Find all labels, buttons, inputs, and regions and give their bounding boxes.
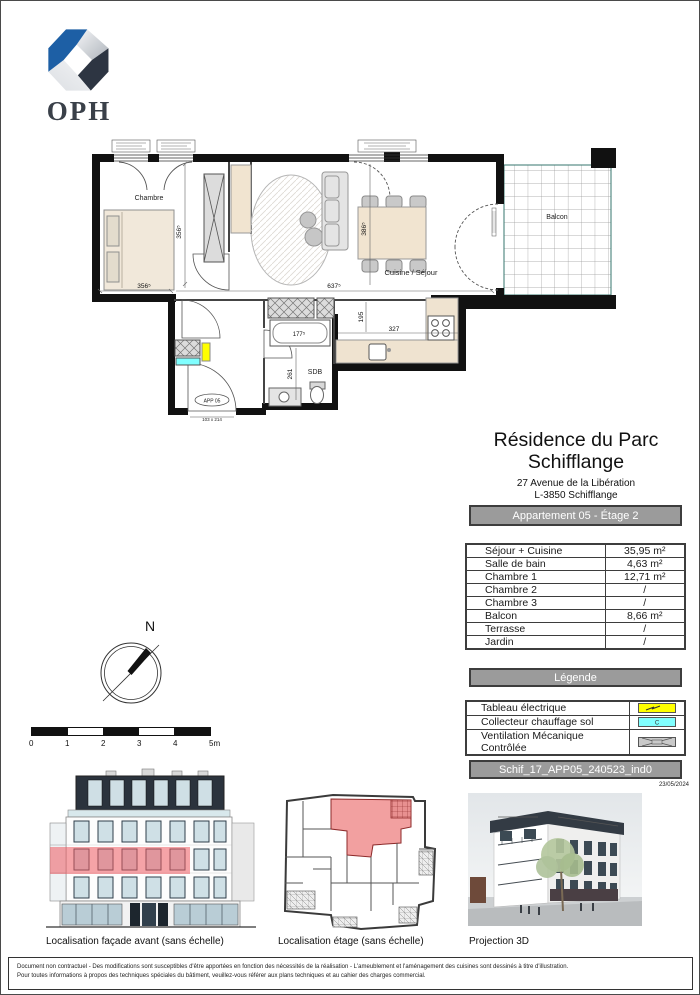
- bedroom-label: Chambre: [135, 195, 164, 202]
- area-value: /: [605, 597, 685, 610]
- area-value: /: [605, 623, 685, 636]
- projection-3d: [468, 793, 642, 926]
- entry-label: APP 05: [204, 399, 221, 405]
- scale-bar: [31, 727, 211, 736]
- legend-label: Tableau électrique: [466, 701, 629, 715]
- svg-text:356⁵: 356⁵: [176, 225, 183, 239]
- area-label: Chambre 2: [466, 584, 605, 597]
- vmc-swatch-icon: [638, 737, 676, 747]
- disclaimer-box: Document non contractuel - Des modificat…: [8, 957, 693, 990]
- svg-text:637⁵: 637⁵: [327, 283, 341, 290]
- storefront: [550, 889, 618, 901]
- table-row: Terrasse/: [466, 623, 685, 636]
- svg-text:195: 195: [358, 311, 365, 322]
- table-row: Salle de bain4,63 m²: [466, 558, 685, 571]
- compass-needle: [128, 648, 152, 675]
- floor-plan: Balcon: [86, 132, 616, 424]
- terrace-band: [68, 810, 230, 817]
- bathroom-label: SDB: [308, 369, 323, 376]
- oph-logo: OPH: [27, 27, 131, 127]
- compass: N: [93, 615, 179, 715]
- scale-tick: 0: [29, 739, 33, 748]
- svg-text:386⁵: 386⁵: [361, 222, 368, 236]
- balcony-label: Balcon: [546, 214, 568, 221]
- scale-tick: 3: [137, 739, 141, 748]
- scale-tick: 5m: [209, 739, 220, 748]
- scale-tick: 4: [173, 739, 177, 748]
- plan-sheet: OPH Balcon: [0, 0, 700, 995]
- legend-label: Ventilation Mécanique Contrôlée: [466, 729, 629, 755]
- scale-tick: 2: [101, 739, 105, 748]
- stove-icon: [428, 316, 454, 340]
- roof-equipment: [106, 769, 208, 776]
- legend-row: Ventilation Mécanique Contrôlée: [466, 729, 685, 755]
- legend-row: Tableau électrique: [466, 701, 685, 715]
- etage-caption: Localisation étage (sans échelle): [278, 936, 424, 947]
- sofa: [322, 172, 348, 250]
- address-line2: L-3850 Schifflange: [461, 490, 691, 502]
- svg-text:327: 327: [389, 326, 400, 333]
- area-label: Séjour + Cuisine: [466, 544, 605, 558]
- bathroom: SDB: [268, 298, 334, 406]
- table-row: Séjour + Cuisine35,95 m²: [466, 544, 685, 558]
- table-row: Chambre 3/: [466, 597, 685, 610]
- apartment-balcony-hatch: [391, 800, 411, 818]
- oph-logo-text: OPH: [27, 96, 131, 127]
- oph-logo-icon: [43, 27, 115, 93]
- svg-text:C: C: [655, 721, 660, 727]
- legend-table: Tableau électrique Collecteur chauffage …: [465, 700, 686, 756]
- title-block: Résidence du Parc Schifflange 27 Avenue …: [461, 429, 691, 502]
- area-label: Jardin: [466, 636, 605, 650]
- table-row: Jardin/: [466, 636, 685, 650]
- entry-door-size: 103 x 214: [202, 417, 222, 422]
- floor-heating-collector: [176, 358, 200, 365]
- scale-labels: 0 1 2 3 4 5m: [25, 739, 225, 751]
- electric-swatch-icon: [638, 703, 676, 713]
- cabinet: [231, 165, 251, 233]
- area-label: Salle de bain: [466, 558, 605, 571]
- hall-tech: [175, 340, 210, 365]
- plan-date: 23/05/2024: [461, 782, 689, 788]
- legend-label: Collecteur chauffage sol: [466, 715, 629, 729]
- svg-text:177⁵: 177⁵: [293, 331, 306, 338]
- entry: APP 05 103 x 214: [190, 394, 234, 422]
- collector-swatch-icon: C: [638, 717, 676, 727]
- legend-badge: Légende: [469, 668, 682, 687]
- area-value: 12,71 m²: [605, 571, 685, 584]
- table-row: Balcon8,66 m²: [466, 610, 685, 623]
- area-value: 4,63 m²: [605, 558, 685, 571]
- area-value: /: [605, 636, 685, 650]
- area-value: /: [605, 584, 685, 597]
- ground-floor: [60, 901, 240, 927]
- toilet-icon: [310, 382, 325, 404]
- apartment-badge: Appartement 05 - Étage 2: [469, 505, 682, 526]
- scale-tick: 1: [65, 739, 69, 748]
- corten-wall: [470, 877, 486, 903]
- facade-elevation: [46, 768, 256, 933]
- projection-caption: Projection 3D: [469, 936, 529, 947]
- disclaimer-line2: Pour toutes informations à propos des te…: [17, 972, 684, 981]
- apartment-highlight: [50, 847, 190, 874]
- area-label: Chambre 1: [466, 571, 605, 584]
- dining-table: [358, 196, 426, 272]
- areas-table: Séjour + Cuisine35,95 m² Salle de bain4,…: [465, 543, 686, 650]
- reference-badge: Schif_17_APP05_240523_ind0: [469, 760, 682, 779]
- etage-plan: [273, 787, 453, 933]
- electric-panel: [202, 343, 210, 361]
- svg-text:356⁵: 356⁵: [137, 283, 151, 290]
- area-label: Terrasse: [466, 623, 605, 636]
- area-value: 8,66 m²: [605, 610, 685, 623]
- living-label: Cuisine / Séjour: [385, 268, 438, 277]
- address-line1: 27 Avenue de la Libération: [461, 478, 691, 490]
- right-annex: [232, 823, 254, 901]
- facade-caption: Localisation façade avant (sans échelle): [46, 936, 224, 947]
- disclaimer-line1: Document non contractuel - Des modificat…: [17, 963, 684, 972]
- table-row: Chambre 112,71 m²: [466, 571, 685, 584]
- table-row: Chambre 2/: [466, 584, 685, 597]
- legend-row: Collecteur chauffage sol C: [466, 715, 685, 729]
- area-label: Balcon: [466, 610, 605, 623]
- svg-text:261: 261: [287, 368, 294, 379]
- balcony: Balcon: [504, 148, 616, 295]
- residence-title-line2: Schifflange: [461, 451, 691, 473]
- area-label: Chambre 3: [466, 597, 605, 610]
- area-value: 35,95 m²: [605, 544, 685, 558]
- north-label: N: [145, 618, 155, 634]
- living-room: Cuisine / Séjour: [251, 172, 438, 285]
- residence-title-line1: Résidence du Parc: [461, 429, 691, 451]
- vmc-box: [175, 340, 200, 356]
